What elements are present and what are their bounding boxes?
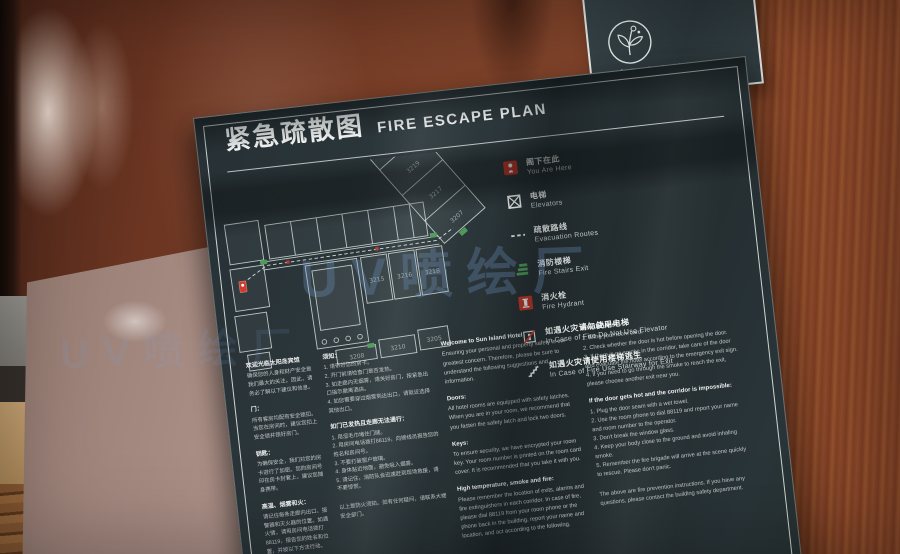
section-text: 为确保安全，我们对您的房卡进行了加密。您的房间号印在房卡封套上，建议您随身携带。 (257, 454, 326, 496)
section-text: 以上是防火须知。如有任何疑问，请联系大楼安全部门。 (339, 492, 448, 521)
sign-title-en: FIRE ESCAPE PLAN (376, 101, 547, 137)
sign-title-cn: 紧急疏散图 (223, 113, 365, 154)
section-text: 请记住每条走廊内出口、报警器和灭火器的位置。如遇火情，请用房间电话拨打88119… (263, 506, 333, 554)
section-text: 所有客房均配有安全锁扣。当您在房间时，建议您扣上安全锁并锁好房门。 (252, 410, 320, 443)
cn-info-column: 欢迎光临太阳岛宾馆确保您的人身和财产安全是我们最大的关注。因此，请务必了解以下建… (246, 355, 335, 554)
section-text: 1. Plug the door seam with a wet towel. … (590, 391, 753, 481)
evacuation-route-icon (510, 228, 525, 243)
fire-escape-plan-sign: 紧急疏散图 FIRE ESCAPE PLAN (193, 56, 814, 554)
room-label: 3213 (383, 143, 399, 150)
cn-instructions-column: 须知：1. 请带好您的房卡。 2. 开门前请检查门是否发热。 3. 如走廊内无烟… (322, 342, 453, 554)
photo-scene: 太阳岛宾馆 SUN ISLAND HOTEL 紧急疏散图 FIRE ESCAPE… (0, 0, 900, 554)
fire-hydrant-icon (518, 295, 533, 310)
en-instructions-column: Instructions:1. Bring your room card. 2.… (580, 308, 758, 535)
hotel-logo-icon (602, 15, 657, 70)
you-are-here-marker (239, 281, 248, 293)
you-are-here-icon (503, 160, 518, 175)
section-text: The above are fire prevention instructio… (599, 473, 756, 509)
elevator-icon (507, 194, 522, 209)
section-text: 1. 用湿毛巾堵住门缝。 2. 用房间电话拨打88119，向接线员报告您的姓名和… (331, 422, 445, 494)
section-text: 1. 请带好您的房卡。 2. 开门前请检查门是否发热。 3. 如走廊内无烟雾，请… (323, 352, 436, 416)
en-info-column: Welcome to Sun Island HotelEnsuring your… (440, 326, 593, 550)
fire-stairs-icon (514, 262, 529, 277)
section-text: 确保您的人身和财产安全是我们最大的关注。因此，请务必了解以下建议和信息。 (247, 366, 315, 399)
